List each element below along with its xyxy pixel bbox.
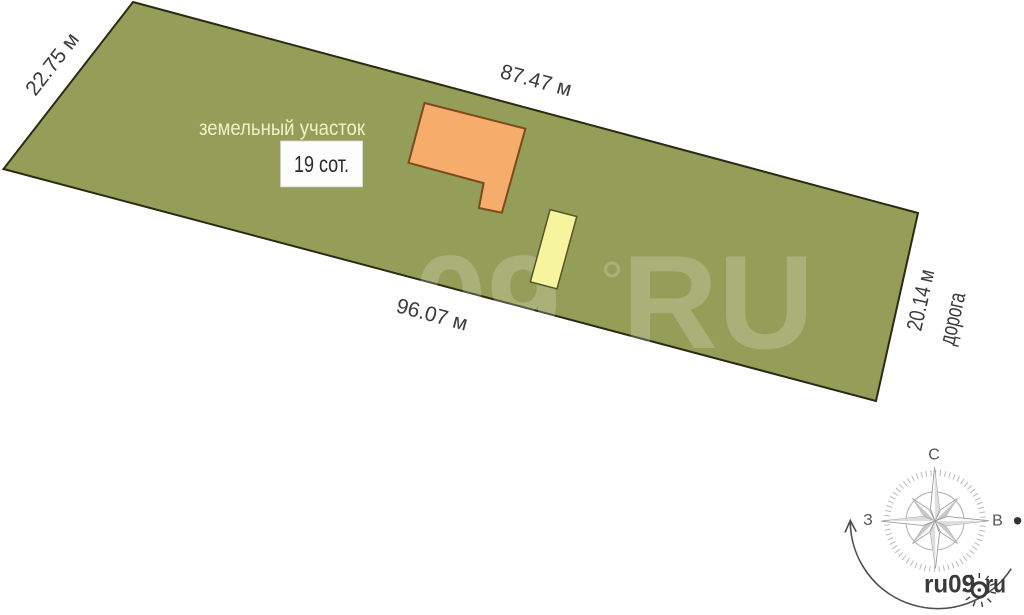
svg-text:З: З: [863, 512, 873, 529]
svg-text:дорога: дорога: [934, 290, 971, 348]
svg-text:земельный участок: земельный участок: [199, 117, 366, 140]
svg-text:20.14 м: 20.14 м: [902, 267, 940, 333]
svg-text:С: С: [928, 447, 940, 464]
svg-text:ru09: ru09: [924, 571, 975, 599]
svg-text:В: В: [992, 513, 1003, 530]
svg-text:19 сот.: 19 сот.: [294, 151, 349, 177]
svg-text:87.47 м: 87.47 м: [498, 60, 574, 101]
svg-text:ru: ru: [985, 571, 1006, 599]
svg-text:RU: RU: [622, 229, 814, 377]
